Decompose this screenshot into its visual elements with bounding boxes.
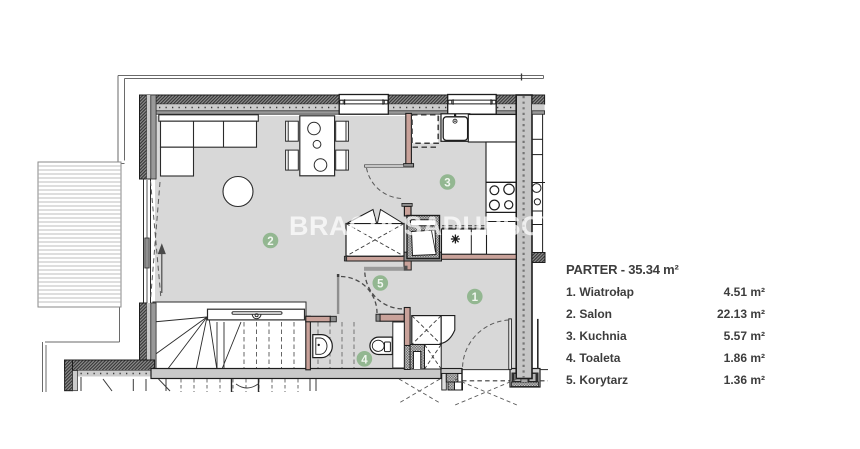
svg-text:1: 1 bbox=[472, 292, 479, 304]
svg-text:3: 3 bbox=[444, 178, 450, 190]
svg-text:5: 5 bbox=[377, 279, 384, 291]
svg-text:2: 2 bbox=[267, 236, 273, 248]
svg-text:4: 4 bbox=[361, 354, 368, 366]
